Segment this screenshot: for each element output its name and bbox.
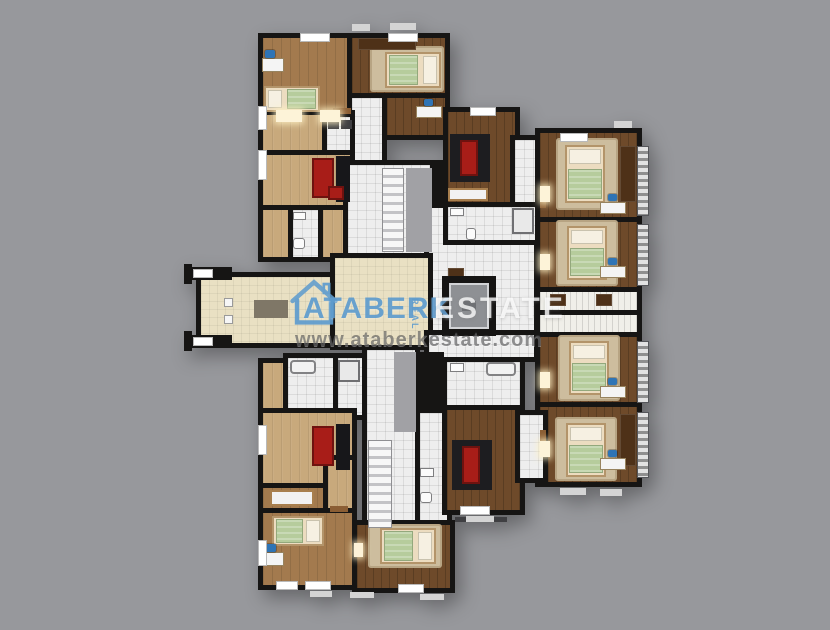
chair-m-bedroom-2 bbox=[608, 258, 617, 265]
ceiling-light-3 bbox=[540, 186, 550, 202]
elevator-car bbox=[449, 283, 489, 329]
ceiling-light-4 bbox=[540, 254, 550, 270]
tub-bl-bath-1 bbox=[290, 360, 316, 374]
desk-tl-bedroom-2 bbox=[416, 106, 442, 118]
window-11 bbox=[398, 584, 424, 593]
vanity-tl-bath-1-b bbox=[341, 120, 352, 129]
toilet-tl-bath-2 bbox=[293, 238, 305, 249]
window-2 bbox=[388, 33, 418, 42]
window-8 bbox=[258, 540, 267, 566]
sink-misc-bath bbox=[420, 468, 434, 477]
pillow bbox=[306, 520, 320, 542]
tv-unit-bl bbox=[336, 424, 350, 470]
desk-bm-bedroom-1 bbox=[600, 458, 626, 470]
window-4 bbox=[560, 133, 588, 142]
bed-bl-bedroom-2 bbox=[380, 528, 436, 564]
sofa-bm bbox=[462, 446, 480, 484]
window-sill-1 bbox=[352, 24, 370, 31]
stair-wall-bridge bbox=[430, 160, 446, 208]
toilet-misc-bath bbox=[420, 492, 432, 503]
blanket bbox=[568, 169, 602, 199]
blanket bbox=[569, 445, 603, 473]
vent-bm-3 bbox=[493, 517, 507, 522]
ceiling-light-7 bbox=[354, 543, 363, 557]
porch-cap-top bbox=[184, 264, 192, 284]
chair-tl-bedroom-1 bbox=[265, 50, 275, 58]
window-3 bbox=[470, 107, 496, 116]
shower-bl-bath-2 bbox=[338, 360, 360, 382]
window-1 bbox=[300, 33, 330, 42]
desk-m-bedroom-2 bbox=[600, 266, 626, 278]
pillow bbox=[569, 149, 601, 164]
terrace-box-2 bbox=[596, 294, 612, 306]
elevator bbox=[442, 276, 496, 336]
window-sill-9 bbox=[466, 516, 494, 522]
door-post-2 bbox=[224, 315, 233, 324]
bed-tl-bedroom-2 bbox=[385, 52, 441, 88]
desk-m-bedroom-1 bbox=[600, 202, 626, 214]
window-14 bbox=[193, 337, 213, 346]
pillow bbox=[571, 230, 603, 244]
kitchen-counter-bl bbox=[270, 490, 314, 506]
blanket bbox=[570, 248, 604, 276]
chair-bm-bedroom-1 bbox=[608, 450, 617, 457]
stairs-upper bbox=[382, 168, 404, 252]
window-sill-4 bbox=[560, 488, 586, 495]
window-5 bbox=[258, 106, 267, 130]
ceiling-light-6 bbox=[540, 441, 550, 457]
floor-plan-image: ATABERK REAL ESTATE www.ataberkestate.co… bbox=[0, 0, 830, 630]
pillow bbox=[268, 90, 282, 108]
bed-m-bedroom-1 bbox=[565, 145, 605, 203]
entry-mat bbox=[254, 300, 288, 318]
window-sill-5 bbox=[600, 489, 622, 496]
chair-tl-bedroom-2 bbox=[424, 99, 433, 106]
shower-m-bath bbox=[512, 208, 534, 234]
pillow bbox=[423, 56, 437, 84]
window-sill-3 bbox=[614, 121, 632, 128]
desk-tl-bedroom-1 bbox=[262, 58, 284, 72]
balcony-m-1 bbox=[637, 146, 649, 216]
window-sill-7 bbox=[350, 592, 374, 598]
window-12 bbox=[460, 506, 490, 515]
door-post-1 bbox=[224, 298, 233, 307]
blanket bbox=[287, 89, 316, 109]
sink-tl-bath-2 bbox=[293, 212, 306, 220]
door-bl-bedroom-1 bbox=[330, 506, 348, 512]
window-sill-8 bbox=[420, 594, 444, 600]
window-13 bbox=[193, 269, 213, 278]
pillow bbox=[418, 532, 432, 560]
ceiling-light-2 bbox=[320, 110, 340, 122]
bed-tl-bedroom-1 bbox=[264, 86, 320, 112]
sofa-bl bbox=[312, 426, 334, 466]
building-plan bbox=[0, 0, 830, 630]
sink-m-bath bbox=[450, 208, 464, 216]
window-6 bbox=[258, 150, 267, 180]
pillow bbox=[573, 345, 605, 359]
window-10 bbox=[305, 581, 331, 590]
blanket bbox=[389, 55, 418, 85]
tub-bm-bath bbox=[486, 362, 516, 376]
wardrobe-m-bedroom-1 bbox=[620, 146, 636, 202]
main-hall bbox=[330, 253, 433, 350]
window-sill-2 bbox=[390, 23, 416, 30]
stair-landing-lower bbox=[394, 352, 416, 432]
desk-bm-bedroom-2 bbox=[600, 386, 626, 398]
chair-bl-bedroom-1 bbox=[266, 544, 276, 552]
balcony-m-2 bbox=[637, 224, 649, 286]
blanket bbox=[276, 519, 303, 543]
blanket bbox=[384, 531, 413, 561]
ceiling-light-5 bbox=[540, 372, 550, 388]
chair-bm-bedroom-2 bbox=[608, 378, 617, 385]
stairs-lower bbox=[368, 440, 392, 528]
balcony-bm-1 bbox=[637, 412, 649, 478]
sink-bm-bath bbox=[450, 363, 464, 372]
chair-m-bedroom-1 bbox=[608, 194, 617, 201]
armchair-tl bbox=[328, 186, 344, 200]
sofa-m bbox=[460, 140, 478, 176]
porch-cap-bottom bbox=[184, 331, 192, 351]
window-sill-6 bbox=[310, 591, 332, 597]
kitchen-counter-m bbox=[448, 188, 488, 201]
stair-landing-upper bbox=[406, 168, 432, 252]
bed-bl-bedroom-1 bbox=[272, 516, 324, 546]
pillow bbox=[570, 427, 602, 441]
core-wall-chunk bbox=[418, 352, 444, 410]
window-7 bbox=[258, 425, 267, 455]
window-9 bbox=[276, 581, 298, 590]
ceiling-light-1 bbox=[276, 110, 302, 122]
toilet-m-bath bbox=[466, 228, 476, 240]
terrace-box-1 bbox=[550, 294, 566, 306]
balcony-bm-2 bbox=[637, 341, 649, 403]
